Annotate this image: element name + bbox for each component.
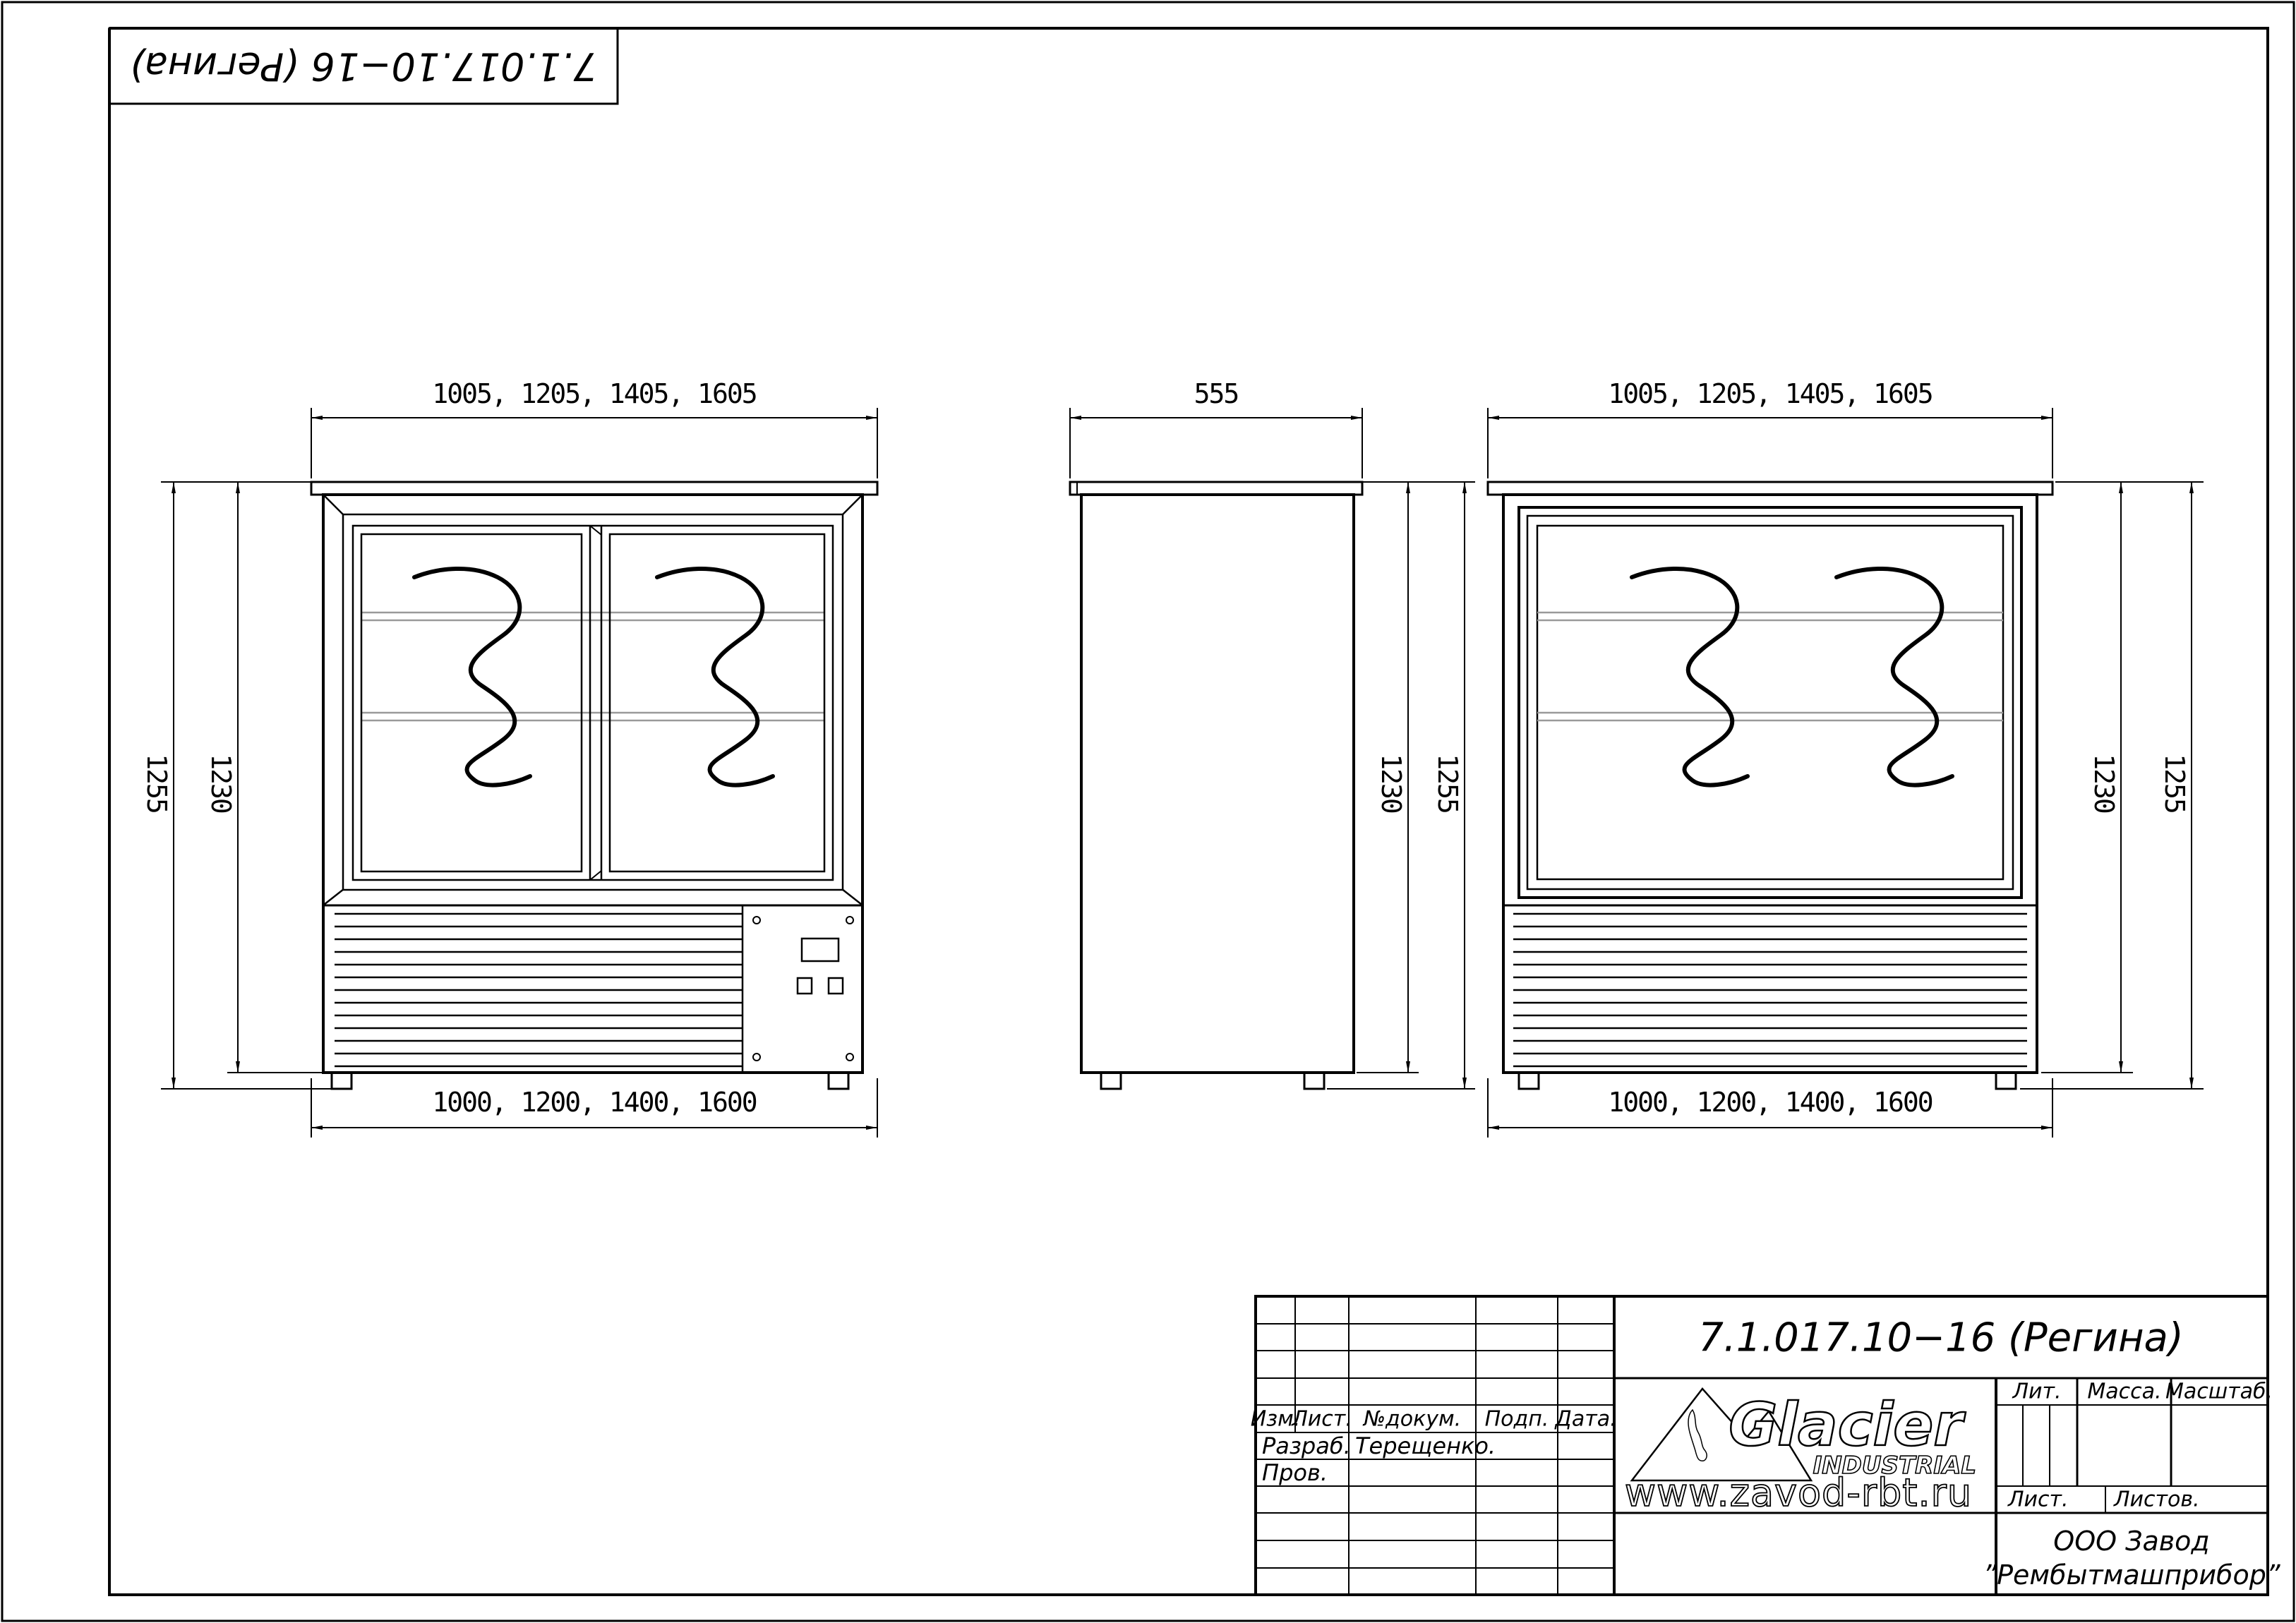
corner-designation-stamp: 7.1.017.10−16 (Регина) — [130, 44, 598, 89]
side-right-foot — [1304, 1073, 1324, 1089]
col-header-list: Лист. — [1292, 1407, 1352, 1432]
front-overall-height-dim: 1255 — [141, 754, 172, 813]
rear-top-width-dim: 1005, 1205, 1405, 1605 — [1608, 378, 1932, 409]
col-header-data: Дата. — [1555, 1407, 1616, 1432]
rear-body-height-dim: 1230 — [2088, 754, 2120, 813]
front-bottom-width-dim: 1000, 1200, 1400, 1600 — [432, 1087, 756, 1118]
front-body-height-dim: 1230 — [205, 754, 236, 813]
lit-label: Лит. — [2012, 1380, 2061, 1404]
controller-display — [802, 939, 839, 961]
screw-icon — [753, 1054, 760, 1061]
rear-overall-height-dim: 1255 — [2159, 754, 2190, 813]
list-label: Лист. — [2008, 1488, 2069, 1512]
listov-label: Листов. — [2114, 1488, 2200, 1512]
rear-right-foot — [1996, 1073, 2016, 1089]
front-top-width-dim: 1005, 1205, 1405, 1605 — [432, 378, 756, 409]
prov-label: Пров. — [1262, 1459, 1328, 1486]
front-left-foot — [332, 1073, 351, 1089]
front-door-mullion — [590, 526, 601, 880]
front-left-door — [361, 534, 582, 871]
drawing-linework: Glacier INDUSTRIAL www.zavod-rbt.ru — [0, 0, 2296, 1623]
rear-louver-grille — [1513, 914, 2027, 1066]
front-view — [161, 408, 877, 1138]
glass-decor-squiggle — [414, 569, 530, 785]
front-right-foot — [829, 1073, 848, 1089]
side-overall-height-dim: 1255 — [1432, 754, 1463, 813]
side-left-foot — [1101, 1073, 1121, 1089]
rear-bottom-width-dim: 1000, 1200, 1400, 1600 — [1608, 1087, 1932, 1118]
front-body — [323, 495, 862, 1073]
razrab-name: Терещенко. — [1355, 1432, 1496, 1459]
rear-countertop — [1488, 482, 2052, 495]
glacier-logo: Glacier INDUSTRIAL www.zavod-rbt.ru — [1625, 1389, 1976, 1515]
drawing-sheet: Glacier INDUSTRIAL www.zavod-rbt.ru 7.1.… — [0, 0, 2296, 1623]
glass-decor-squiggle — [1837, 569, 1952, 785]
razrab-label: Разраб. — [1262, 1432, 1351, 1459]
company-name-line1: ООО Завод — [2053, 1526, 2209, 1557]
front-countertop — [311, 482, 877, 495]
front-control-panel — [743, 905, 853, 1073]
col-header-ndokum: №докум. — [1364, 1407, 1461, 1432]
title-designation: 7.1.017.10−16 (Регина) — [1698, 1315, 2183, 1361]
masshtab-label: Масштаб. — [2165, 1380, 2273, 1404]
controller-button — [798, 978, 812, 994]
controller-button — [829, 978, 843, 994]
side-body-height-dim: 1230 — [1376, 754, 1407, 813]
glass-decor-squiggle — [1632, 569, 1748, 785]
col-header-podp: Подп. — [1485, 1407, 1549, 1432]
massa-label: Масса. — [2087, 1380, 2161, 1404]
logo-website-text: www.zavod-rbt.ru — [1625, 1471, 1972, 1515]
side-body — [1081, 495, 1354, 1073]
screw-icon — [846, 1054, 853, 1061]
rear-body — [1503, 495, 2037, 1073]
side-countertop — [1070, 482, 1362, 495]
rear-left-foot — [1519, 1073, 1539, 1089]
rear-glass-pane — [1537, 526, 2003, 879]
screw-icon — [753, 917, 760, 924]
side-dimensions — [1070, 408, 1475, 1089]
side-depth-dim: 555 — [1194, 378, 1239, 409]
logo-brand-text: Glacier — [1729, 1390, 1966, 1459]
rear-glass-frame — [1519, 507, 2021, 898]
front-louver-grille — [335, 914, 743, 1066]
glass-decor-squiggle — [657, 569, 773, 785]
screw-icon — [846, 917, 853, 924]
company-name-line2: ”Рембытмашприбор” — [1983, 1559, 2280, 1591]
side-view — [1070, 408, 1475, 1089]
front-right-door — [610, 534, 824, 871]
